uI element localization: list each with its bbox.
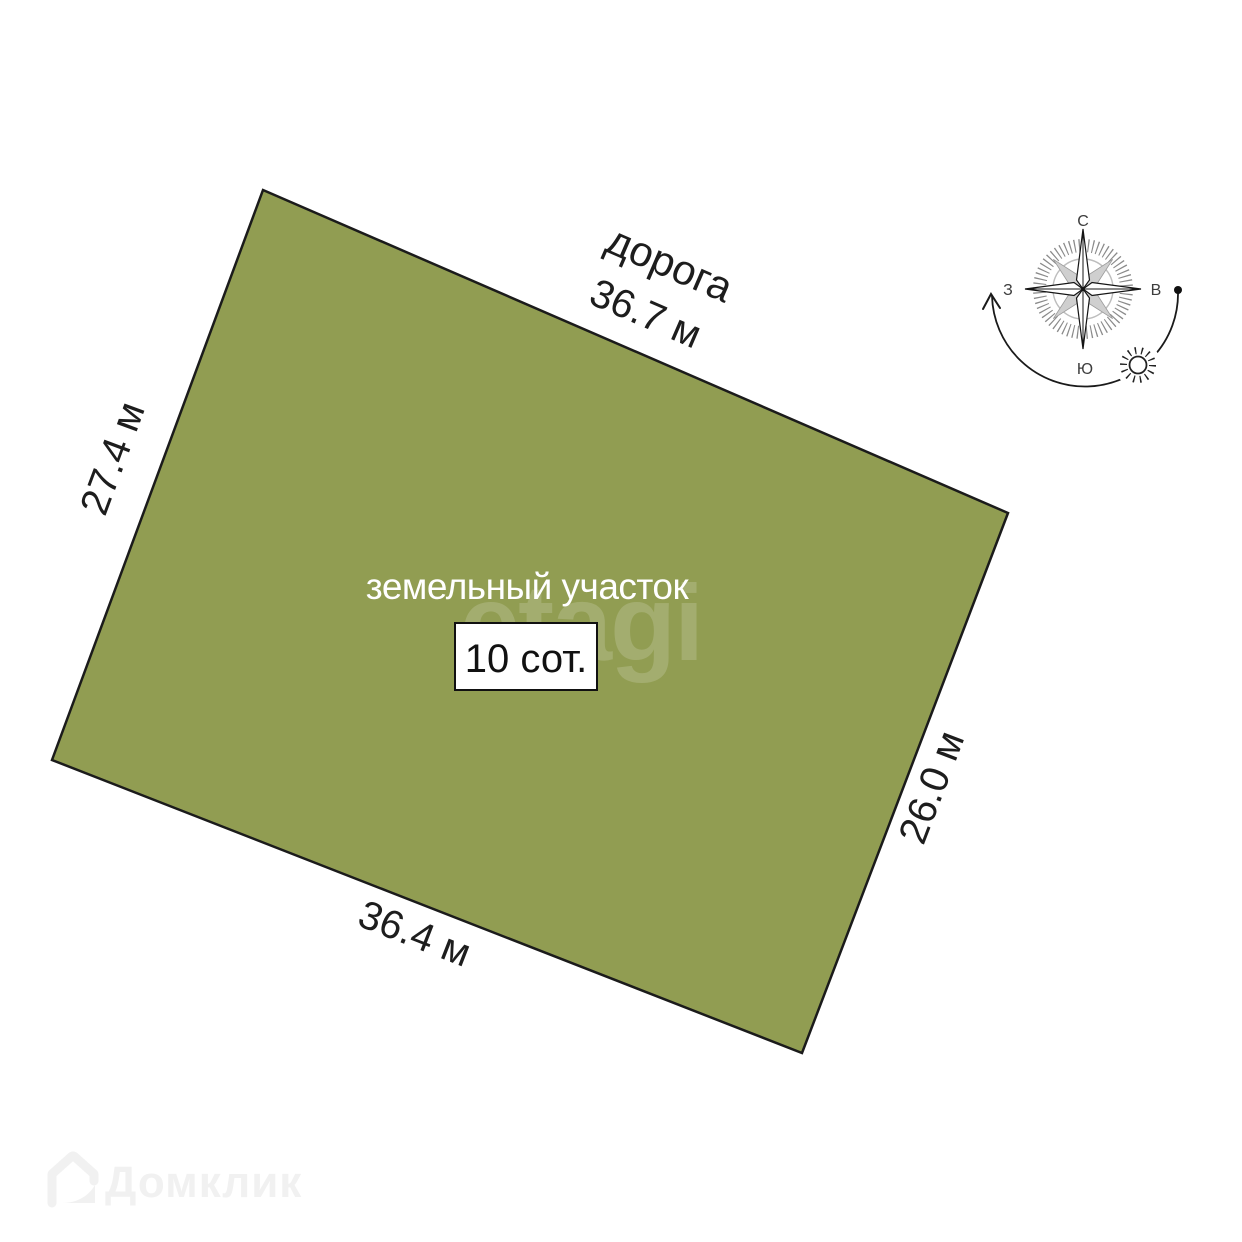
scheme-canvas: etagi земельный участок 10 сот. дорога 3… — [0, 0, 1242, 1242]
compass-south-label: Ю — [1077, 361, 1093, 378]
compass-rose: С Ю З В — [983, 213, 1182, 388]
sunrise-dot — [1174, 286, 1182, 294]
land-plot-scheme: etagi земельный участок 10 сот. дорога 3… — [0, 0, 1242, 1242]
domclick-logo: Домклик — [52, 1156, 302, 1207]
compass-north-label: С — [1077, 213, 1089, 230]
plot-title-label: земельный участок — [366, 566, 690, 607]
domclick-house-flag — [62, 1185, 95, 1203]
area-value-label: 10 сот. — [465, 637, 587, 681]
domclick-watermark-text: Домклик — [105, 1158, 302, 1207]
compass-east-label: В — [1151, 282, 1162, 299]
left-edge-length-label: 27.4 м — [72, 396, 154, 520]
sun-icon — [1130, 357, 1147, 374]
compass-west-label: З — [1003, 282, 1013, 299]
